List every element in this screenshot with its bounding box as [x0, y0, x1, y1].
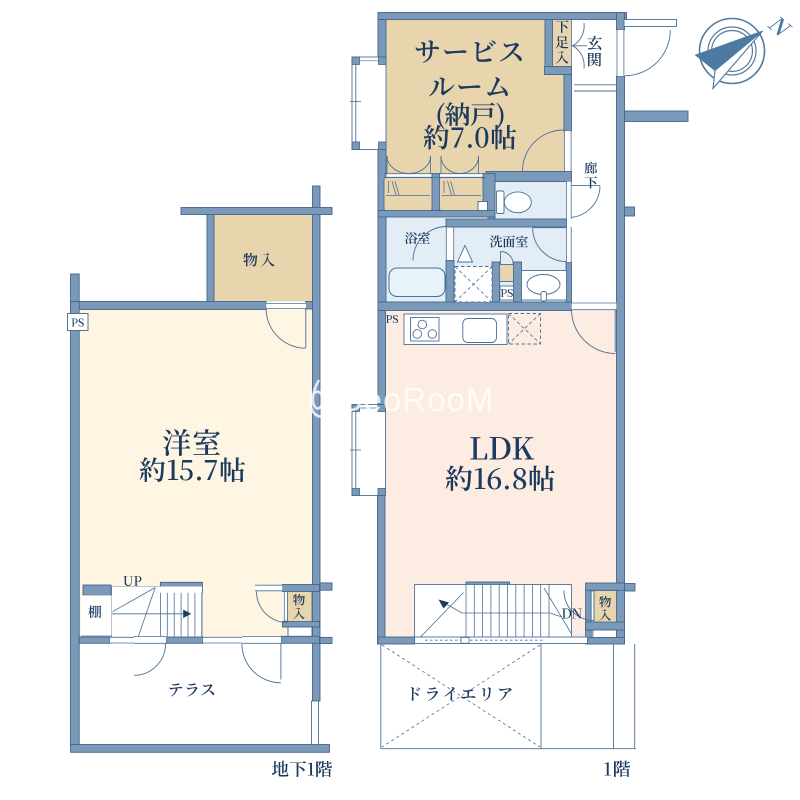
svg-text:DN: DN [561, 603, 582, 623]
svg-text:入: 入 [599, 605, 612, 623]
svg-text:PS: PS [385, 312, 398, 327]
svg-text:地下1階: 地下1階 [272, 757, 333, 782]
svg-text:関: 関 [587, 49, 603, 71]
svg-text:入: 入 [293, 604, 306, 622]
svg-text:約16.8帖: 約16.8帖 [445, 458, 556, 498]
svg-text:PS: PS [71, 316, 84, 331]
svg-text:UP: UP [123, 571, 142, 590]
svg-text:入: 入 [555, 48, 569, 68]
svg-text:浴室: 浴室 [404, 228, 430, 247]
svg-text:GeoRooM: GeoRooM [337, 381, 494, 418]
svg-text:物入: 物入 [243, 250, 277, 271]
svg-text:PS: PS [500, 286, 513, 301]
svg-text:下: 下 [584, 172, 598, 192]
svg-text:N: N [762, 8, 798, 45]
svg-text:1階: 1階 [603, 756, 631, 782]
svg-text:テラス: テラス [167, 678, 216, 701]
svg-text:洗面室: 洗面室 [489, 232, 528, 251]
svg-text:約15.7帖: 約15.7帖 [139, 449, 246, 488]
svg-text:棚: 棚 [88, 602, 102, 622]
svg-text:約7.0帖: 約7.0帖 [423, 117, 517, 156]
svg-text:サービス: サービス [414, 31, 526, 70]
svg-text:ドライエリア: ドライエリア [406, 681, 516, 705]
